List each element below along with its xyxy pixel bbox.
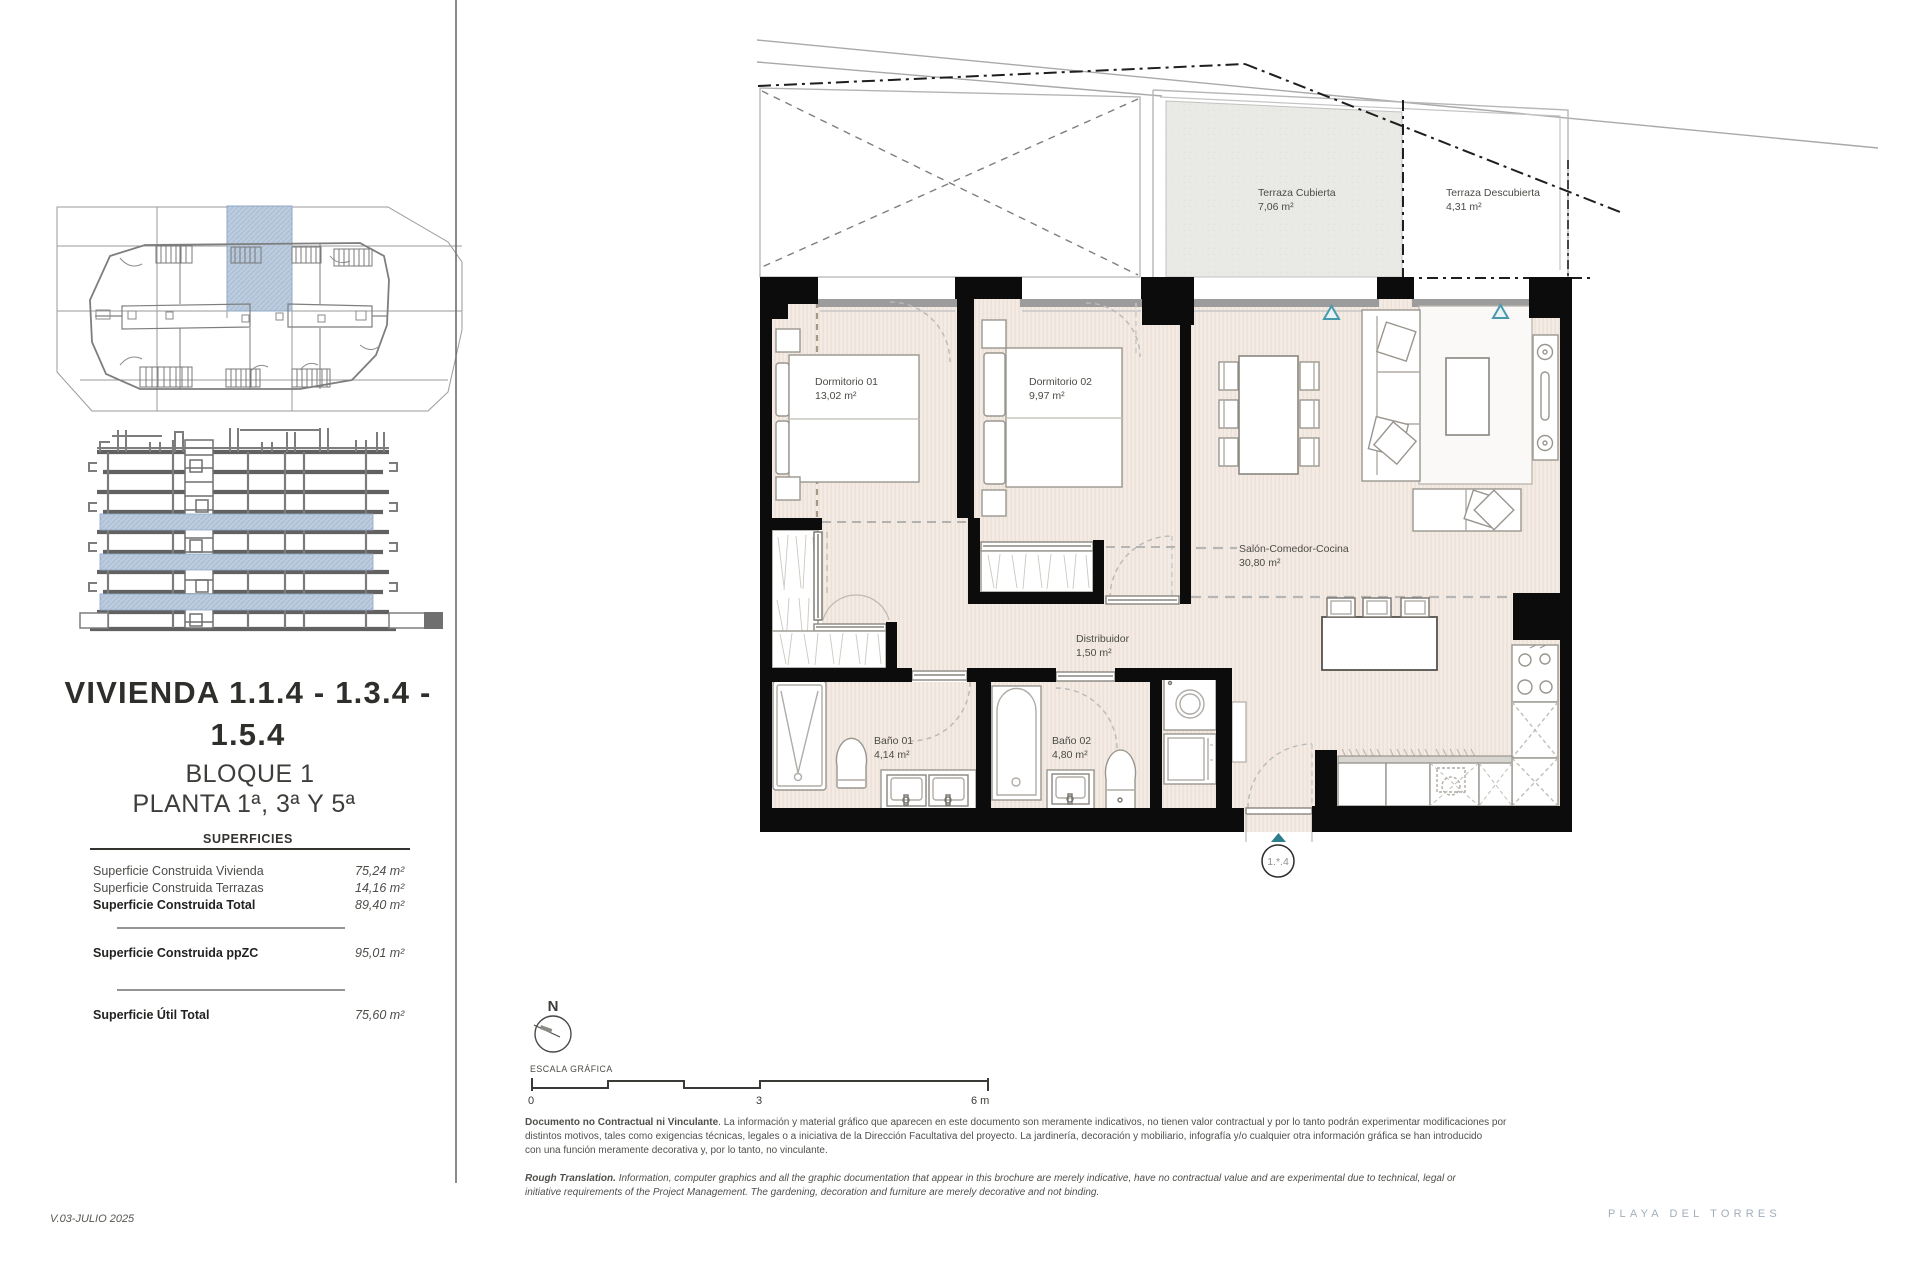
svg-text:con una función meramente deco: con una función meramente decorativa y, … [525,1145,828,1156]
svg-text:Dormitorio 02: Dormitorio 02 [1029,376,1092,388]
svg-text:Rough Translation. Information: Rough Translation. Information, computer… [525,1173,1457,1184]
svg-text:75,60 m²: 75,60 m² [355,1008,405,1022]
svg-text:initiative requirements of the: initiative requirements of the Project M… [525,1187,1099,1198]
svg-text:14,16 m²: 14,16 m² [355,881,405,895]
svg-text:PLANTA 1ª, 3ª Y 5ª: PLANTA 1ª, 3ª Y 5ª [133,790,356,818]
svg-text:3: 3 [756,1095,762,1107]
svg-text:distintos motivos, tales como: distintos motivos, tales como exigencias… [525,1131,1483,1142]
svg-text:1.5.4: 1.5.4 [211,717,286,752]
svg-text:13,02 m²: 13,02 m² [815,390,857,402]
svg-text:Baño 01: Baño 01 [874,735,913,747]
svg-text:PLAYA DEL TORRES: PLAYA DEL TORRES [1608,1208,1781,1220]
svg-text:4,80 m²: 4,80 m² [1052,749,1088,761]
svg-text:Superficie Construida ppZC: Superficie Construida ppZC [93,946,258,960]
svg-text:7,06 m²: 7,06 m² [1258,201,1294,213]
svg-text:SUPERFICIES: SUPERFICIES [203,832,293,846]
svg-text:1,50 m²: 1,50 m² [1076,647,1112,659]
svg-text:6 m: 6 m [971,1095,989,1107]
svg-text:95,01 m²: 95,01 m² [355,946,405,960]
svg-text:30,80 m²: 30,80 m² [1239,557,1281,569]
svg-text:4,14 m²: 4,14 m² [874,749,910,761]
svg-text:V.03-JULIO 2025: V.03-JULIO 2025 [50,1213,135,1225]
svg-text:Superficie Construida Terrazas: Superficie Construida Terrazas [93,881,264,895]
svg-text:4,31 m²: 4,31 m² [1446,201,1482,213]
svg-text:Superficie Útil Total: Superficie Útil Total [93,1007,209,1022]
svg-text:Baño 02: Baño 02 [1052,735,1091,747]
svg-text:BLOQUE 1: BLOQUE 1 [185,760,314,788]
svg-text:75,24 m²: 75,24 m² [355,864,405,878]
svg-text:Distribuidor: Distribuidor [1076,633,1130,645]
svg-text:N: N [548,998,559,1015]
svg-text:Superficie Construida Vivienda: Superficie Construida Vivienda [93,864,264,878]
svg-text:Terraza Descubierta: Terraza Descubierta [1446,187,1540,199]
svg-text:Salón-Comedor-Cocina: Salón-Comedor-Cocina [1239,543,1349,555]
svg-text:0: 0 [528,1095,534,1107]
svg-text:Dormitorio 01: Dormitorio 01 [815,376,878,388]
svg-text:Superficie Construida Total: Superficie Construida Total [93,898,255,912]
svg-text:9,97 m²: 9,97 m² [1029,390,1065,402]
svg-text:VIVIENDA 1.1.4 - 1.3.4 -: VIVIENDA 1.1.4 - 1.3.4 - [64,675,431,710]
svg-text:Documento no Contractual ni Vi: Documento no Contractual ni Vinculante. … [525,1117,1507,1128]
svg-text:1.*.4: 1.*.4 [1267,856,1289,868]
svg-text:89,40 m²: 89,40 m² [355,898,405,912]
svg-text:ESCALA GRÁFICA: ESCALA GRÁFICA [530,1064,613,1074]
svg-text:Terraza Cubierta: Terraza Cubierta [1258,187,1336,199]
